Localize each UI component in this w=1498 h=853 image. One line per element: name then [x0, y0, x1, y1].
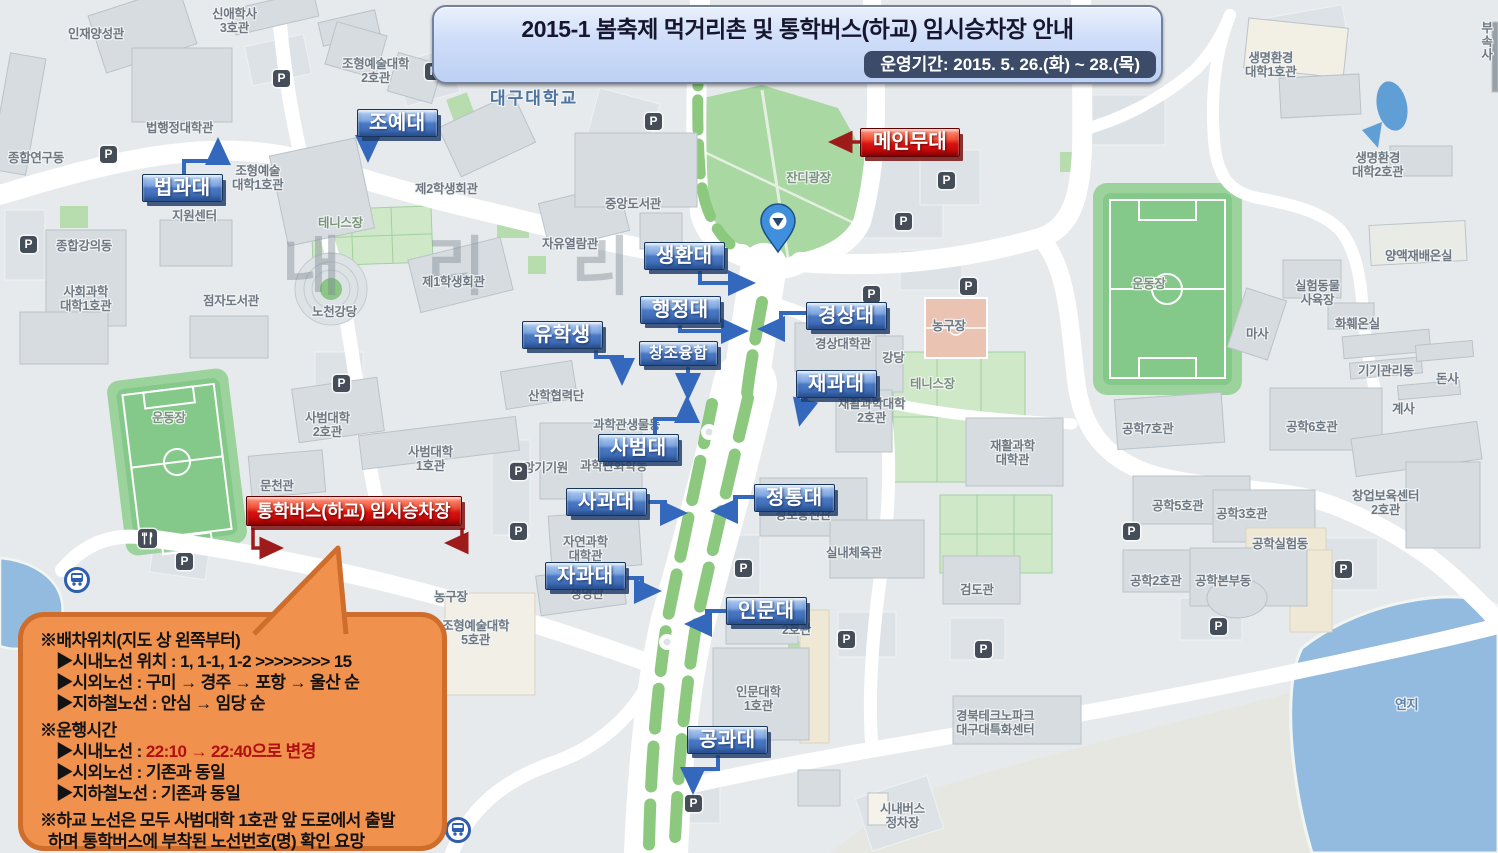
college-label: 인문대	[726, 597, 807, 625]
bus-stop-icon	[64, 567, 90, 593]
map-label: 과학관생물동	[593, 419, 660, 433]
map-label: 잔디광장	[786, 172, 831, 186]
map-label: 제2학생회관	[415, 183, 478, 197]
bubble-line: ▶지하철노선 : 안심 → 임당 순	[40, 693, 434, 714]
map-label: 법행정대학관	[146, 122, 213, 136]
bubble-line: ▶지하철노선 : 기존과 동일	[40, 783, 434, 804]
info-bubble: ※배차위치(지도 상 왼쪽부터) ▶시내노선 위치 : 1, 1-1, 1-2 …	[18, 612, 447, 851]
college-label: 사과대	[566, 488, 647, 516]
college-label: 정통대	[754, 484, 835, 512]
map-label: 조형예술 대학1호관	[232, 165, 283, 192]
bubble-line: ▶시외노선 : 구미 → 경주 → 포항 → 울산 순	[40, 672, 434, 693]
map-label: 운동장	[1132, 278, 1166, 292]
parking-icon: P	[685, 795, 702, 812]
parking-icon: P	[975, 641, 992, 658]
map-label: 재활과학대학 2호관	[838, 398, 905, 425]
map-label: 시내버스 정차장	[880, 803, 925, 830]
parking-icon: P	[960, 278, 977, 295]
map-label: 신애학사 3호관	[212, 8, 257, 35]
restaurant-icon	[138, 529, 157, 548]
map-label: 돈사	[1436, 373, 1458, 387]
map-label: 공학3호관	[1216, 508, 1267, 522]
map-label: 생명관	[570, 588, 604, 602]
main-stage-label: 메인무대	[860, 128, 960, 157]
title-banner: 2015-1 봄축제 먹거리촌 및 통학버스(하교) 임시승차장 안내 운영기간…	[432, 5, 1163, 84]
map-label: 재활과학 대학관	[990, 440, 1035, 467]
map-label: 과학관화학동	[580, 460, 647, 474]
college-label: 법과대	[142, 174, 223, 202]
map-label: 사범대학 2호관	[305, 412, 350, 439]
bubble-footer-line: ※하교 노선은 모두 사범대학 1호관 앞 도로에서 출발	[40, 810, 434, 831]
college-label: 창조융합	[639, 341, 718, 366]
bubble-line: ▶시외노선 : 기존과 동일	[40, 762, 434, 783]
map-label: 경상대학관	[815, 338, 871, 352]
college-label: 조예대	[357, 109, 438, 137]
college-label: 재과대	[796, 370, 877, 398]
map-label: 계사	[1392, 403, 1414, 417]
parking-icon: P	[645, 113, 662, 130]
college-label: 생환대	[644, 242, 725, 270]
map-label: 지원센터	[172, 210, 217, 224]
map-label: 인재양성관	[68, 28, 124, 42]
map-label: 실내체육관	[826, 547, 882, 561]
college-label: 자과대	[545, 562, 626, 590]
map-label: 연지	[1395, 698, 1418, 712]
bubble-line: ▶시내노선 : 22:10 → 22:40으로 변경	[40, 741, 434, 762]
parking-icon: P	[1210, 618, 1227, 635]
map-label: 공학2호관	[1130, 575, 1181, 589]
parking-icon: P	[895, 213, 912, 230]
map-label: 검도관	[960, 584, 994, 598]
map-label: 조형예술대학 5호관	[442, 620, 509, 647]
bubble-line: ▶시내노선 위치 : 1, 1-1, 1-2 >>>>>>>> 15	[40, 651, 434, 672]
map-label: 제1학생회관	[422, 276, 485, 290]
college-label: 행정대	[640, 296, 721, 324]
parking-icon: P	[838, 631, 855, 648]
college-label: 경상대	[806, 302, 887, 330]
map-label: 부속 사	[1476, 22, 1498, 63]
operation-period: 운영기간: 2015. 5. 26.(화) ~ 28.(목)	[864, 51, 1156, 78]
map-label: 강당	[882, 352, 904, 366]
parking-icon: P	[1123, 523, 1140, 540]
bubble-line-highlight: 22:10 → 22:40으로 변경	[146, 742, 316, 761]
map-label: 종합강의동	[56, 240, 112, 254]
bus-stop-icon	[445, 817, 471, 843]
map-label: 공학7호관	[1122, 423, 1173, 437]
parking-icon: P	[863, 286, 880, 303]
map-label: 공학5호관	[1152, 500, 1203, 514]
parking-icon: P	[20, 236, 37, 253]
map-label: 실험동물 사육장	[1295, 280, 1340, 307]
map-label: 화훼온실	[1335, 318, 1380, 332]
soccer-field-right	[1093, 183, 1242, 395]
university-name-label: 대구대학교	[490, 90, 578, 108]
map-label: 사회과학 대학1호관	[60, 286, 111, 313]
map-label: 점자도서관	[203, 295, 259, 309]
college-label: 공과대	[687, 726, 768, 754]
map-label: 테니스장	[910, 378, 955, 392]
map-label: 공학실험동	[1252, 538, 1308, 552]
map-label: 생명환경 대학1호관	[1245, 52, 1296, 79]
parking-icon: P	[1335, 561, 1352, 578]
bubble-section2-title: ※운행시간	[40, 720, 434, 741]
map-label: 생명환경 대학2호관	[1352, 152, 1403, 179]
bubble-footer-line: 하며 통학버스에 부착된 노선번호(명) 확인 요망	[40, 831, 434, 852]
campus-map-poster: 내 리 리 인재양성관 신애학사 3호관 조형예술대학 2호관 법행정대학관 종…	[0, 0, 1498, 853]
map-label: 경북테크노파크 대구대특화센터	[956, 710, 1034, 737]
parking-icon: P	[100, 146, 117, 163]
map-label: 산학협력단	[528, 390, 584, 404]
map-label: 테니스장	[318, 217, 363, 231]
parking-icon: P	[273, 70, 290, 87]
parking-icon: P	[938, 172, 955, 189]
parking-icon: P	[510, 463, 527, 480]
map-label: 인문대학 1호관	[736, 686, 781, 713]
map-label: 창업보육센터 2호관	[1352, 490, 1419, 517]
map-label: 공학6호관	[1286, 421, 1337, 435]
parking-icon: P	[510, 523, 527, 540]
parking-icon: P	[333, 375, 350, 392]
map-label: 2호관	[782, 624, 811, 638]
map-label: 자유열람관	[542, 238, 598, 252]
poster-title: 2015-1 봄축제 먹거리촌 및 통학버스(하교) 임시승차장 안내	[434, 15, 1161, 43]
map-label: 농구장	[434, 591, 468, 605]
map-label: 조형예술대학 2호관	[342, 58, 409, 85]
map-label: 문천관	[260, 480, 294, 494]
map-label: 마사	[1246, 328, 1268, 342]
map-label: 자연과학 대학관	[563, 536, 608, 563]
map-label: 운동장	[152, 412, 186, 426]
bubble-section1-title: ※배차위치(지도 상 왼쪽부터)	[40, 630, 434, 651]
parking-icon: P	[176, 553, 193, 570]
map-label: 사범대학 1호관	[408, 446, 453, 473]
map-label: 공학본부동	[1195, 575, 1251, 589]
bubble-line-label: ▶시내노선 :	[56, 742, 146, 761]
temp-bus-stop-label: 통학버스(하교) 임시승차장	[246, 496, 462, 526]
map-label: 종합연구동	[8, 152, 64, 166]
map-label: 중앙도서관	[605, 198, 661, 212]
map-label: 양액재배온실	[1385, 250, 1452, 264]
college-label: 유학생	[522, 321, 603, 349]
parking-icon: P	[735, 560, 752, 577]
map-label: 기기관리동	[1358, 365, 1414, 379]
map-label: 노천강당	[312, 306, 357, 320]
map-label: 농구장	[932, 320, 966, 334]
college-label: 사범대	[598, 434, 679, 462]
